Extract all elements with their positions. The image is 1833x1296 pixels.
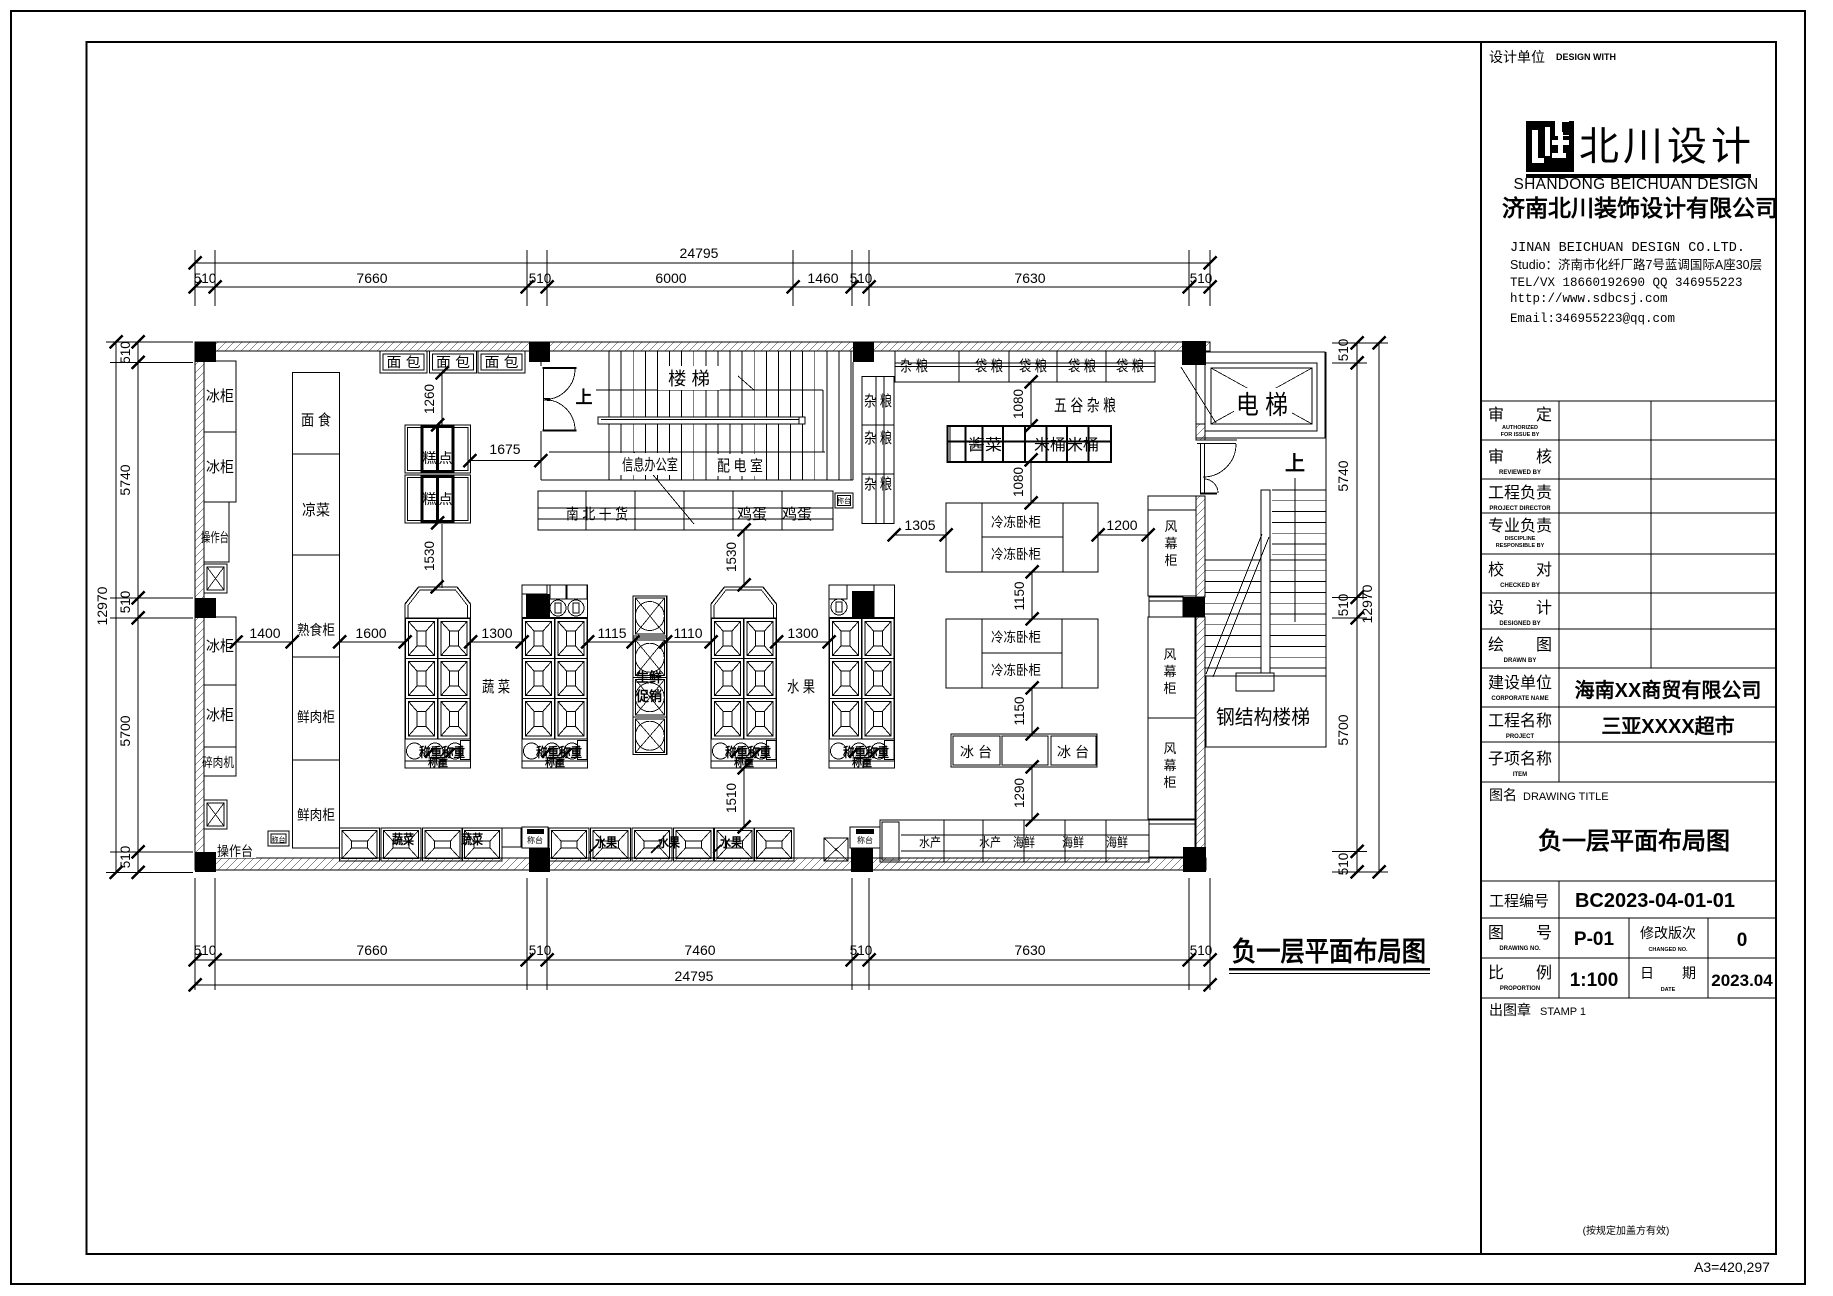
- svg-text:审 核: 审 核: [1488, 448, 1552, 466]
- svg-text:柜: 柜: [1164, 553, 1177, 568]
- svg-text:1150: 1150: [1012, 581, 1027, 610]
- svg-text:7630: 7630: [1014, 270, 1045, 286]
- svg-text:DESIGNED BY: DESIGNED BY: [1499, 621, 1540, 627]
- svg-text:24795: 24795: [680, 245, 719, 261]
- svg-text:海鲜: 海鲜: [1013, 835, 1035, 850]
- svg-text:1080: 1080: [1011, 389, 1026, 419]
- svg-text:510: 510: [1190, 271, 1213, 286]
- svg-text:五 谷 杂 粮: 五 谷 杂 粮: [1054, 396, 1116, 415]
- svg-text:1600: 1600: [355, 625, 386, 641]
- svg-text:DRAWN BY: DRAWN BY: [1504, 658, 1537, 664]
- svg-text:Studio：济南市化纤厂路7号蓝调国际A座30层: Studio：济南市化纤厂路7号蓝调国际A座30层: [1510, 257, 1762, 272]
- svg-text:1400: 1400: [249, 625, 280, 641]
- svg-text:510: 510: [529, 943, 552, 958]
- svg-text:DRAWING NO.: DRAWING NO.: [1499, 946, 1541, 952]
- svg-text:修改版次: 修改版次: [1640, 925, 1696, 941]
- svg-text:配 电 室: 配 电 室: [717, 457, 763, 475]
- svg-text:5740: 5740: [1335, 460, 1351, 491]
- svg-text:FOR ISSUE BY: FOR ISSUE BY: [1501, 432, 1540, 438]
- svg-text:幕: 幕: [1163, 758, 1176, 773]
- svg-text:510: 510: [1336, 594, 1351, 617]
- svg-text:面 包: 面 包: [387, 355, 421, 370]
- svg-text:称台: 称台: [527, 835, 543, 845]
- svg-text:日 期: 日 期: [1640, 965, 1696, 981]
- svg-text:5700: 5700: [117, 715, 133, 746]
- svg-text:冰柜: 冰柜: [206, 388, 234, 405]
- svg-text:三亚XXXX超市: 三亚XXXX超市: [1601, 714, 1734, 738]
- svg-text:1115: 1115: [597, 625, 626, 641]
- svg-text:袋 粮: 袋 粮: [1019, 358, 1047, 375]
- svg-text:1530: 1530: [724, 542, 739, 572]
- svg-text:510: 510: [194, 271, 217, 286]
- svg-text:水果: 水果: [658, 835, 680, 850]
- svg-text:称台: 称台: [857, 835, 873, 845]
- svg-text:称台: 称台: [837, 496, 851, 505]
- svg-text:6000: 6000: [655, 270, 686, 286]
- svg-text:称台: 称台: [272, 835, 286, 844]
- svg-text:7660: 7660: [356, 270, 387, 286]
- svg-text:楼 梯: 楼 梯: [668, 369, 710, 389]
- svg-text:工程名称: 工程名称: [1488, 712, 1552, 730]
- svg-text:510: 510: [529, 271, 552, 286]
- svg-text:5740: 5740: [117, 464, 133, 495]
- svg-text:蔬菜: 蔬菜: [392, 832, 414, 847]
- svg-text:图名: 图名: [1489, 787, 1517, 803]
- svg-text:杂 粮: 杂 粮: [864, 393, 892, 410]
- svg-text:STAMP 1: STAMP 1: [1540, 1006, 1586, 1018]
- svg-text:上: 上: [1285, 452, 1305, 475]
- svg-text:DESIGN WITH: DESIGN WITH: [1556, 52, 1616, 62]
- svg-text:风: 风: [1163, 741, 1176, 756]
- svg-text:冷冻卧柜: 冷冻卧柜: [991, 630, 1041, 645]
- svg-text:PROJECT DIRECTOR: PROJECT DIRECTOR: [1489, 506, 1551, 512]
- svg-text:510: 510: [1336, 339, 1351, 362]
- svg-text:7630: 7630: [1014, 942, 1045, 958]
- svg-text:PROJECT: PROJECT: [1506, 734, 1535, 740]
- svg-text:柜: 柜: [1163, 681, 1176, 696]
- svg-text:PROPORTION: PROPORTION: [1500, 986, 1540, 992]
- svg-text:袋 粮: 袋 粮: [1116, 358, 1144, 375]
- svg-text:7660: 7660: [356, 942, 387, 958]
- svg-text:JINAN BEICHUAN DESIGN CO.LTD: JINAN BEICHUAN DESIGN CO.LTD.: [1510, 241, 1745, 256]
- svg-text:称重: 称重: [428, 755, 448, 769]
- svg-text:风: 风: [1163, 647, 1176, 662]
- svg-text:冷冻卧柜: 冷冻卧柜: [991, 515, 1041, 530]
- svg-text:面 食: 面 食: [301, 412, 331, 429]
- svg-text:南 北 干 货: 南 北 干 货: [566, 506, 628, 523]
- svg-text:1510: 1510: [724, 783, 739, 813]
- svg-text:生鲜: 生鲜: [636, 669, 662, 685]
- svg-text:水果: 水果: [720, 835, 742, 850]
- svg-text:1530: 1530: [422, 541, 437, 571]
- svg-text:杂 粮: 杂 粮: [864, 430, 892, 447]
- svg-text:510: 510: [118, 846, 133, 869]
- svg-text:杂 粮: 杂 粮: [864, 476, 892, 493]
- svg-text:1:100: 1:100: [1570, 970, 1619, 991]
- svg-text:糕: 糕: [423, 450, 437, 466]
- svg-text:DATE: DATE: [1661, 987, 1676, 993]
- svg-text:糕: 糕: [423, 491, 437, 507]
- svg-text:DRAWING TITLE: DRAWING TITLE: [1523, 791, 1609, 803]
- svg-text:米桶: 米桶: [1034, 436, 1066, 454]
- svg-text:济南北川装饰设计有限公司: 济南北川装饰设计有限公司: [1502, 195, 1778, 221]
- svg-text:酱菜: 酱菜: [968, 436, 1002, 454]
- svg-text:12970: 12970: [1359, 584, 1375, 623]
- svg-text:Email:346955223@qq.com: Email:346955223@qq.com: [1510, 312, 1675, 326]
- svg-text:1080: 1080: [1011, 467, 1026, 497]
- svg-text:1200: 1200: [1106, 517, 1137, 533]
- svg-text:水产: 水产: [979, 835, 1001, 850]
- svg-text:510: 510: [118, 591, 133, 614]
- svg-text:510: 510: [1336, 853, 1351, 876]
- svg-text:水果: 水果: [595, 835, 617, 850]
- svg-text:钢结构楼梯: 钢结构楼梯: [1216, 706, 1310, 729]
- svg-text:设计单位: 设计单位: [1489, 49, 1545, 65]
- svg-text:米桶: 米桶: [1067, 436, 1099, 454]
- svg-text:工程负责: 工程负责: [1488, 484, 1552, 502]
- svg-text:1300: 1300: [481, 625, 512, 641]
- svg-text:上: 上: [576, 388, 593, 407]
- svg-text:促销: 促销: [635, 688, 662, 704]
- svg-text:510: 510: [1190, 943, 1213, 958]
- svg-text:海南XX商贸有限公司: 海南XX商贸有限公司: [1575, 678, 1762, 702]
- svg-text:ITEM: ITEM: [1513, 772, 1527, 778]
- svg-text:比 例: 比 例: [1488, 964, 1552, 982]
- svg-text:电 梯: 电 梯: [1236, 390, 1288, 420]
- svg-text:510: 510: [850, 943, 873, 958]
- svg-text:鲜肉柜: 鲜肉柜: [297, 709, 335, 725]
- svg-text:出图章: 出图章: [1489, 1002, 1531, 1018]
- svg-text:0: 0: [1737, 930, 1748, 951]
- svg-text:CHECKED BY: CHECKED BY: [1500, 583, 1540, 589]
- svg-text:袋 粮: 袋 粮: [1068, 358, 1096, 375]
- svg-text:杂 粮: 杂 粮: [900, 358, 928, 375]
- svg-text:(按规定加盖方有效): (按规定加盖方有效): [1583, 1224, 1670, 1237]
- svg-text:风: 风: [1164, 519, 1177, 534]
- svg-text:鸡蛋: 鸡蛋: [737, 506, 767, 523]
- svg-text:面 包: 面 包: [436, 355, 470, 370]
- svg-text:工程编号: 工程编号: [1489, 893, 1549, 910]
- svg-text:冰 台: 冰 台: [960, 744, 992, 760]
- svg-text:P-01: P-01: [1574, 929, 1615, 950]
- svg-text:碎肉机: 碎肉机: [202, 755, 234, 770]
- svg-text:1305: 1305: [904, 517, 935, 533]
- svg-text:RESPONSIBLE BY: RESPONSIBLE BY: [1496, 543, 1545, 549]
- svg-text:信息办公室: 信息办公室: [622, 456, 678, 474]
- svg-text:操作台: 操作台: [217, 844, 253, 859]
- svg-text:24795: 24795: [675, 968, 714, 984]
- svg-text:幕: 幕: [1164, 536, 1177, 551]
- svg-text:审 定: 审 定: [1488, 406, 1552, 424]
- svg-text:蔬 菜: 蔬 菜: [482, 678, 510, 696]
- svg-text:510: 510: [850, 271, 873, 286]
- svg-text:绘 图: 绘 图: [1488, 636, 1552, 654]
- svg-text:海鲜: 海鲜: [1062, 835, 1084, 850]
- svg-text:510: 510: [118, 341, 133, 364]
- svg-text:1300: 1300: [787, 625, 818, 641]
- svg-text:操作台: 操作台: [201, 530, 229, 545]
- svg-text:510: 510: [194, 943, 217, 958]
- svg-text:1675: 1675: [489, 441, 520, 457]
- svg-text:TEL/VX 18660192690 QQ 346955: TEL/VX 18660192690 QQ 346955223: [1510, 276, 1743, 290]
- svg-text:SHANDONG BEICHUAN DESIGN: SHANDONG BEICHUAN DESIGN: [1514, 176, 1759, 193]
- svg-text:子项名称: 子项名称: [1488, 750, 1552, 768]
- svg-text:蔬菜: 蔬菜: [461, 832, 483, 847]
- svg-text:http://www.sdbcsj.com: http://www.sdbcsj.com: [1510, 292, 1668, 306]
- svg-text:冷冻卧柜: 冷冻卧柜: [991, 663, 1041, 678]
- svg-text:负一层平面布局图: 负一层平面布局图: [1232, 937, 1426, 967]
- svg-text:水 果: 水 果: [787, 678, 815, 696]
- svg-text:称重: 称重: [852, 755, 872, 769]
- svg-text:12970: 12970: [94, 586, 110, 625]
- svg-text:冰柜: 冰柜: [206, 459, 234, 476]
- svg-text:幕: 幕: [1163, 664, 1176, 679]
- svg-text:鸡蛋: 鸡蛋: [782, 506, 812, 523]
- svg-text:熟食柜: 熟食柜: [297, 622, 335, 638]
- svg-text:CHANGED NO.: CHANGED NO.: [1648, 947, 1688, 953]
- svg-text:1260: 1260: [422, 384, 437, 414]
- svg-text:校 对: 校 对: [1488, 561, 1552, 579]
- svg-text:设 计: 设 计: [1488, 599, 1552, 617]
- svg-text:1150: 1150: [1012, 696, 1027, 725]
- svg-text:袋 粮: 袋 粮: [975, 358, 1003, 375]
- svg-text:7460: 7460: [684, 942, 715, 958]
- svg-text:建设单位: 建设单位: [1488, 674, 1552, 692]
- svg-text:REVIEWED BY: REVIEWED BY: [1499, 470, 1541, 476]
- svg-text:点: 点: [439, 450, 453, 466]
- svg-text:1110: 1110: [673, 625, 702, 641]
- svg-text:海鲜: 海鲜: [1106, 835, 1128, 850]
- svg-text:图 号: 图 号: [1488, 924, 1552, 942]
- svg-text:CORPORATE NAME: CORPORATE NAME: [1491, 696, 1548, 702]
- svg-text:负一层平面布局图: 负一层平面布局图: [1538, 827, 1730, 855]
- svg-text:1290: 1290: [1012, 778, 1027, 808]
- svg-text:1460: 1460: [807, 270, 838, 286]
- svg-text:冰 台: 冰 台: [1057, 744, 1089, 760]
- svg-text:A3=420,297: A3=420,297: [1694, 1259, 1770, 1275]
- svg-text:DISCIPLINE: DISCIPLINE: [1505, 536, 1536, 542]
- svg-text:BC2023-04-01-01: BC2023-04-01-01: [1575, 890, 1735, 912]
- svg-text:2023.04: 2023.04: [1711, 971, 1773, 990]
- svg-text:冰柜: 冰柜: [206, 707, 234, 724]
- svg-text:北川设计: 北川设计: [1579, 125, 1755, 169]
- svg-text:5700: 5700: [1335, 714, 1351, 745]
- svg-text:鲜肉柜: 鲜肉柜: [297, 807, 335, 823]
- svg-text:柜: 柜: [1163, 775, 1176, 790]
- svg-text:面 包: 面 包: [485, 355, 519, 370]
- svg-text:冷冻卧柜: 冷冻卧柜: [991, 547, 1041, 562]
- svg-text:称重: 称重: [545, 755, 565, 769]
- svg-text:专业负责: 专业负责: [1488, 517, 1552, 535]
- svg-text:AUTHORIZED: AUTHORIZED: [1502, 425, 1538, 431]
- svg-text:凉菜: 凉菜: [302, 502, 330, 519]
- svg-text:点: 点: [439, 491, 453, 507]
- svg-text:水产: 水产: [919, 835, 941, 850]
